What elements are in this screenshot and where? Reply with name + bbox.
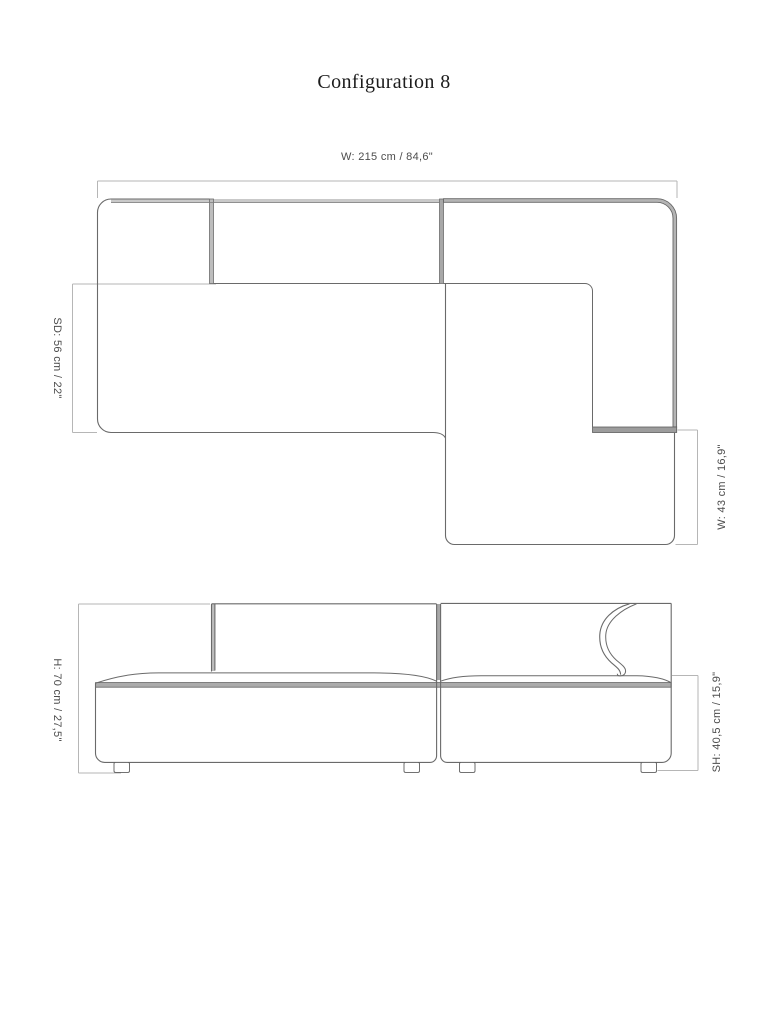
plan-dimension-lines [73, 181, 698, 545]
dim-line-overall-width [98, 181, 678, 198]
plan-corner-backrest-band [444, 199, 677, 427]
elevation-seat-front-band [96, 683, 672, 688]
elevation-view [79, 603, 699, 773]
plan-module-seam-right [440, 199, 444, 284]
dim-label-seat-height: SH: 40,5 cm / 15,9" [711, 672, 723, 773]
elevation-left-cushion-line [96, 673, 437, 683]
plan-module-seam-left [210, 199, 214, 284]
dim-line-seat-depth [73, 284, 217, 433]
sofa-foot [641, 762, 657, 772]
sofa-foot [114, 762, 130, 772]
plan-view [73, 181, 698, 545]
elevation-corner-backrest-curve-outer [600, 604, 630, 675]
dim-line-chaise-width [676, 430, 698, 545]
elevation-left-backrest-outline [212, 604, 437, 672]
plan-corner-inner-step-line [444, 284, 593, 428]
spec-sheet-page: Configuration 8 [0, 0, 768, 1024]
dim-label-height: H: 70 cm / 27,5" [51, 658, 63, 741]
plan-chaise-outline [446, 284, 675, 545]
elevation-seam-band [437, 604, 441, 680]
dim-label-seat-depth: SD: 56 cm / 22" [51, 317, 63, 398]
dim-line-seat-height [658, 676, 699, 771]
elevation-right-cushion-line [441, 676, 672, 683]
dim-line-height [79, 604, 211, 773]
dim-label-overall-width: W: 215 cm / 84,6" [341, 151, 433, 163]
elevation-dimension-lines [79, 604, 699, 773]
sofa-foot [460, 762, 476, 772]
plan-chaise-back-band [593, 427, 677, 433]
plan-sofa-outer-outline [98, 199, 446, 438]
sofa-feet [114, 762, 657, 772]
sofa-foot [404, 762, 420, 772]
dim-label-chaise-width: W: 43 cm / 16,9" [716, 444, 728, 530]
